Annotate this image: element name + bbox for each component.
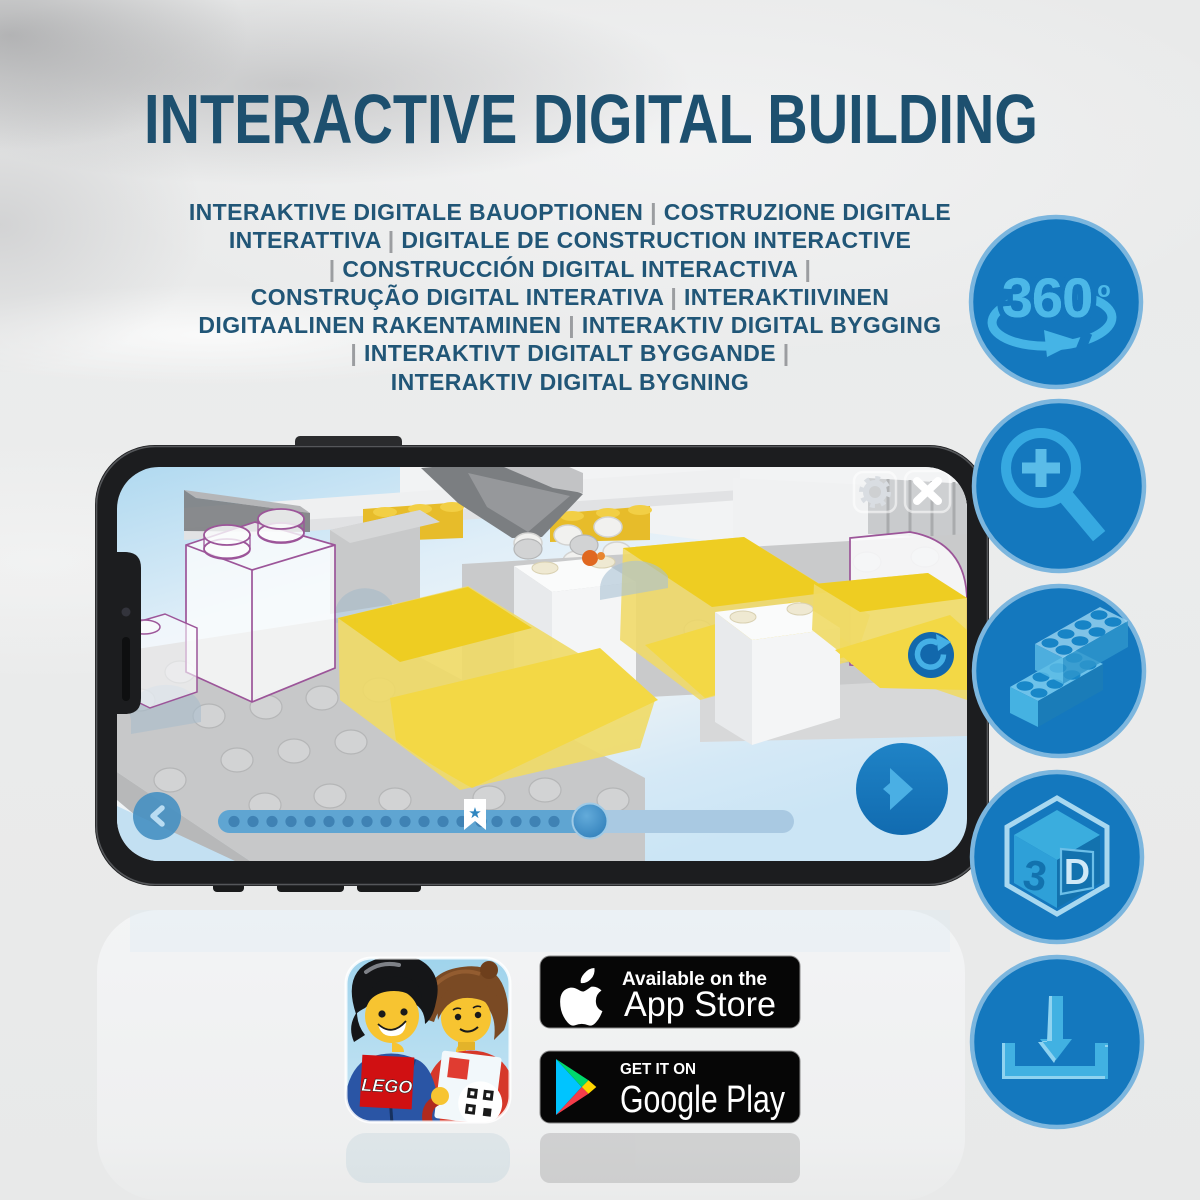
svg-text:360: 360 <box>1002 266 1092 329</box>
svg-text:Google Play: Google Play <box>620 1079 785 1121</box>
svg-text:D: D <box>1064 851 1090 892</box>
svg-text:LEGO: LEGO <box>361 1075 413 1098</box>
svg-text:GET IT ON: GET IT ON <box>620 1061 696 1078</box>
svg-text:App Store: App Store <box>624 985 776 1024</box>
svg-text:o: o <box>1097 277 1110 302</box>
